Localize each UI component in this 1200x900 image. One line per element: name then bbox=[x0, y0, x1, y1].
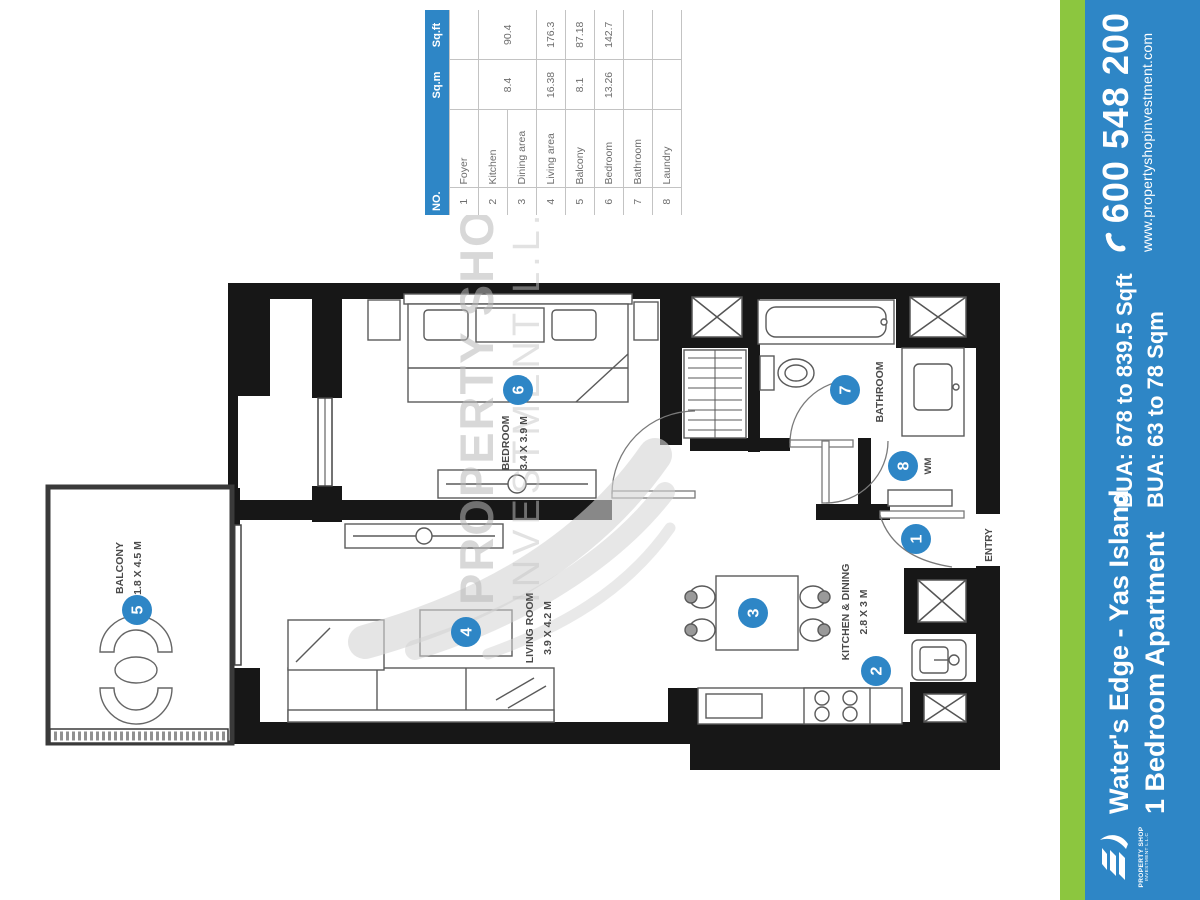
phone-icon bbox=[1104, 231, 1128, 252]
kitchen-sink bbox=[706, 694, 762, 718]
marker-number: 4 bbox=[459, 627, 476, 636]
cell-no: 4 bbox=[537, 188, 566, 215]
table-row: 4 Living area 16.38 176.3 bbox=[537, 10, 566, 215]
marker-dining: 3 bbox=[738, 598, 768, 628]
stove bbox=[804, 688, 870, 724]
living-label: LIVING ROOM bbox=[524, 592, 536, 663]
table-row: 8 Laundry bbox=[653, 10, 682, 215]
cell-no: 6 bbox=[595, 188, 624, 215]
cell-sqm: 8.4 bbox=[479, 60, 537, 110]
cell-sqm bbox=[450, 60, 479, 110]
header-room bbox=[425, 110, 450, 188]
watermark-text-line1: PROPERTY SHOP bbox=[450, 175, 503, 605]
laundry-door bbox=[822, 441, 888, 503]
marker-bedroom: 6 bbox=[503, 375, 533, 405]
nightstand bbox=[634, 302, 658, 340]
table-row: 6 Bedroom 13.26 142.7 bbox=[595, 10, 624, 215]
unit-type: 1 Bedroom Apartment bbox=[1137, 489, 1173, 814]
cell-no: 1 bbox=[450, 188, 479, 215]
company-logo: PROPERTY SHOP INVESTMENT L.L.C bbox=[1097, 822, 1150, 892]
bua-sqm: BUA: 63 to 78 Sqm bbox=[1140, 273, 1171, 508]
cell-room: Foyer bbox=[450, 110, 479, 188]
header-sqft: Sq.ft bbox=[425, 10, 450, 60]
cell-room: Bedroom bbox=[595, 110, 624, 188]
header-sqm: Sq.m bbox=[425, 60, 450, 110]
table-row: 5 Balcony 8.1 87.18 bbox=[566, 10, 595, 215]
balcony-dims: 1.8 X 4.5 M bbox=[132, 541, 144, 595]
shaft-icon bbox=[904, 568, 980, 634]
bathroom-label: BATHROOM bbox=[874, 361, 886, 422]
project-name: Water's Edge - Yas Island bbox=[1101, 489, 1137, 814]
bedroom-dims: 3.4 X 3.9 M bbox=[518, 416, 530, 470]
marker-number: 3 bbox=[746, 608, 763, 617]
marker-number: 1 bbox=[909, 534, 926, 543]
marker-entry: 1 bbox=[901, 524, 931, 554]
listing-titles: Water's Edge - Yas Island 1 Bedroom Apar… bbox=[1101, 489, 1173, 814]
balcony-table bbox=[115, 657, 157, 683]
cell-sqft: 87.18 bbox=[566, 10, 595, 60]
shaft-icon bbox=[910, 682, 980, 734]
cell-room: Bathroom bbox=[624, 110, 653, 188]
marker-number: 5 bbox=[130, 605, 147, 614]
area-table: NO. Sq.m Sq.ft 1 Foyer 2 Ki bbox=[425, 10, 682, 215]
phone-number: 600 548 200 bbox=[1095, 12, 1137, 223]
bua-sqft: BUA: 678 to 839.5 Sqft bbox=[1109, 273, 1140, 508]
marker-number: 7 bbox=[838, 385, 855, 394]
marker-bathroom: 7 bbox=[830, 375, 860, 405]
cell-no: 5 bbox=[566, 188, 595, 215]
cell-room: Dining area bbox=[508, 110, 537, 188]
marker-number: 2 bbox=[869, 666, 886, 675]
cell-room: Kitchen bbox=[479, 110, 508, 188]
green-accent-bar bbox=[1060, 0, 1085, 900]
marker-kitchen: 2 bbox=[861, 656, 891, 686]
bedroom-window bbox=[318, 398, 332, 486]
cell-sqft: 90.4 bbox=[479, 10, 537, 60]
floorplan-brochure-page: PROPERTY SHOP INVESTMENT L.L.C BEDROOM 3… bbox=[0, 0, 1200, 900]
table-row: 2 Kitchen 8.4 90.4 bbox=[479, 10, 508, 215]
logo-text-top: PROPERTY SHOP bbox=[1138, 822, 1145, 892]
property-shop-logo-icon bbox=[1097, 830, 1131, 884]
cell-no: 8 bbox=[653, 188, 682, 215]
cell-room: Balcony bbox=[566, 110, 595, 188]
marker-laundry: 8 bbox=[888, 451, 918, 481]
cell-room: Living area bbox=[537, 110, 566, 188]
pillow bbox=[552, 310, 596, 340]
entry-label: ENTRY bbox=[984, 528, 995, 562]
shaft-icon bbox=[678, 286, 756, 348]
marker-number: 6 bbox=[511, 385, 528, 394]
table-header-row: NO. Sq.m Sq.ft bbox=[425, 10, 450, 215]
nightstand bbox=[368, 300, 400, 340]
header-no: NO. bbox=[425, 188, 450, 215]
cell-sqft bbox=[653, 10, 682, 60]
laundry-wm-label: WM bbox=[923, 457, 934, 474]
cell-room: Laundry bbox=[653, 110, 682, 188]
branding-bar-wrap: PROPERTY SHOP INVESTMENT L.L.C Water's E… bbox=[1085, 0, 1200, 900]
living-dims: 3.9 X 4.2 M bbox=[542, 601, 554, 655]
cell-sqft bbox=[624, 10, 653, 60]
cell-sqm: 13.26 bbox=[595, 60, 624, 110]
cell-sqm: 8.1 bbox=[566, 60, 595, 110]
table-row: 1 Foyer bbox=[450, 10, 479, 215]
bua-block: BUA: 678 to 839.5 Sqft BUA: 63 to 78 Sqm bbox=[1109, 273, 1171, 508]
website-url: www.propertyshopinvestment.com bbox=[1139, 12, 1155, 252]
vanity-sink bbox=[902, 348, 964, 436]
kitchen-dining-label: KITCHEN & DINING bbox=[840, 564, 852, 661]
balcony-label: BALCONY bbox=[114, 542, 126, 594]
cell-sqft: 176.3 bbox=[537, 10, 566, 60]
cell-sqm bbox=[653, 60, 682, 110]
shaft-icon bbox=[896, 286, 980, 348]
cell-sqm bbox=[624, 60, 653, 110]
branding-bar: PROPERTY SHOP INVESTMENT L.L.C Water's E… bbox=[1085, 0, 1200, 900]
marker-number: 8 bbox=[896, 461, 913, 470]
bedroom-label: BEDROOM bbox=[500, 415, 512, 470]
cell-sqft bbox=[450, 10, 479, 60]
wardrobe bbox=[684, 350, 746, 438]
fridge bbox=[912, 640, 966, 680]
cell-no: 3 bbox=[508, 188, 537, 215]
cell-no: 7 bbox=[624, 188, 653, 215]
marker-living: 4 bbox=[451, 617, 481, 647]
cell-no: 2 bbox=[479, 188, 508, 215]
logo-text-bottom: INVESTMENT L.L.C bbox=[1145, 822, 1150, 892]
watermark: PROPERTY SHOP INVESTMENT L.L.C bbox=[365, 175, 670, 654]
area-table-wrap: NO. Sq.m Sq.ft 1 Foyer 2 Ki bbox=[425, 10, 675, 215]
entry-cabinet bbox=[888, 490, 952, 506]
kitchen-dining-dims: 2.8 X 3 M bbox=[858, 589, 870, 634]
toilet bbox=[760, 356, 814, 390]
marker-balcony: 5 bbox=[122, 595, 152, 625]
table-row: 7 Bathroom bbox=[624, 10, 653, 215]
cell-sqft: 142.7 bbox=[595, 10, 624, 60]
cell-sqm: 16.38 bbox=[537, 60, 566, 110]
contact-block: 600 548 200 www.propertyshopinvestment.c… bbox=[1095, 12, 1155, 252]
